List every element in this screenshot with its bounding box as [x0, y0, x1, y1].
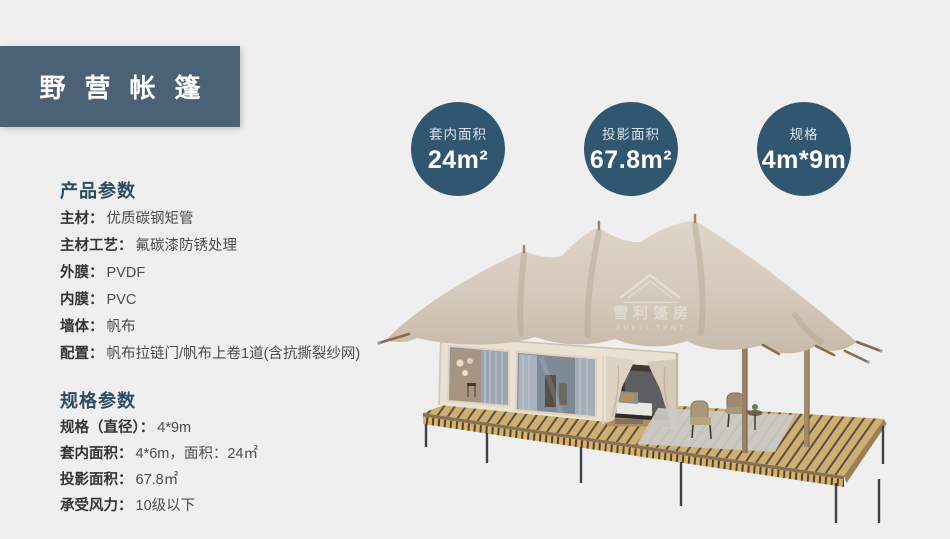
tent-illustration: 雪利篷房 XUELI TENT [375, 205, 950, 534]
page: { "page": { "background": "#efeff0" }, "… [0, 0, 950, 534]
cabin-window-left [448, 346, 509, 406]
badge-value: 67.8m² [590, 146, 672, 175]
tent-product-image: 雪利篷房 XUELI TENT [375, 205, 950, 534]
product-params-heading: 产品参数 [60, 177, 136, 203]
badge-label: 套内面积 [429, 123, 487, 143]
spec-params-heading: 规格参数 [60, 387, 136, 413]
badge-size: 规格 4m*9m [757, 102, 851, 196]
page-title: 野营帐篷 [39, 68, 219, 105]
badge-value: 4m*9m [762, 146, 847, 175]
badge-label: 规格 [790, 123, 819, 143]
badge-value: 24m² [428, 146, 488, 175]
badge-label: 投影面积 [602, 123, 660, 143]
canopy: 雪利篷房 XUELI TENT [377, 215, 882, 364]
page-title-banner: 野营帐篷 [0, 46, 240, 127]
watermark-en: XUELI TENT [616, 325, 686, 332]
cabin-window-center [516, 352, 596, 417]
watermark-cn: 雪利篷房 [613, 304, 693, 322]
badge-inner-area: 套内面积 24m² [411, 102, 505, 196]
badge-projection-area: 投影面积 67.8m² [584, 102, 678, 196]
